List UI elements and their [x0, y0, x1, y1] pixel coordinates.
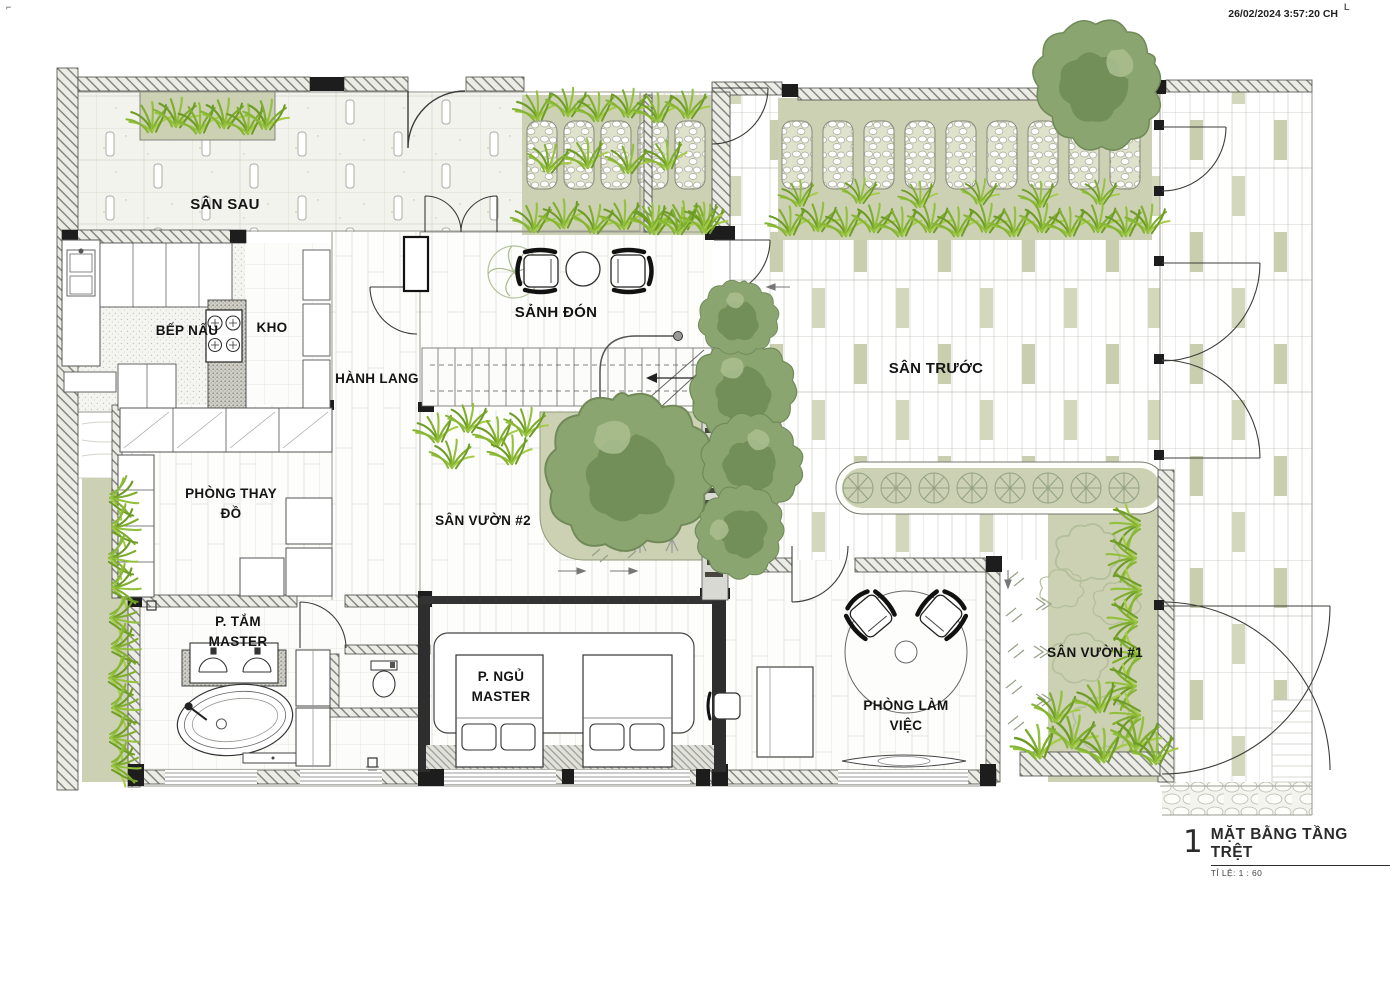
label-line: MASTER	[209, 632, 268, 652]
label-line: PHÒNG LÀM	[863, 696, 948, 716]
room-label-bep-nau: BẾP NẤU	[156, 321, 219, 341]
room-label-san-truoc: SÂN TRƯỚC	[889, 359, 984, 379]
room-label-hanh-lang: HÀNH LANG	[335, 369, 419, 389]
floor-plan-sheet: ⌐ L 26/02/2024 3:57:20 CH SÂN SAU BẾP NẤ…	[0, 0, 1390, 983]
toilet-icon	[371, 661, 397, 697]
master-bedroom-furniture	[426, 633, 714, 769]
room-label-san-vuon-1: SÂN VƯỜN #1	[1047, 643, 1143, 663]
crop-mark-top-right: L	[1344, 2, 1350, 12]
side-table-icon	[566, 252, 600, 286]
room-label-san-sau: SÂN SAU	[190, 195, 260, 215]
drawing-number: 1	[1183, 826, 1203, 858]
label-line: P. TẮM	[209, 612, 268, 632]
label-line: P. NGỦ	[472, 667, 531, 687]
storage-shelf	[303, 360, 330, 410]
room-label-sanh-don: SẢNH ĐÓN	[515, 303, 597, 323]
room-label-p-ngu-master: P. NGỦ MASTER	[472, 667, 531, 707]
storage-shelf	[303, 250, 330, 300]
label-line: PHÒNG THAY	[185, 484, 277, 504]
desk-icon	[757, 667, 813, 757]
drawing-scale: TỈ LỆ: 1 : 60	[1211, 868, 1390, 878]
title-block: 1 MẶT BẰNG TẦNG TRỆT TỈ LỆ: 1 : 60	[1183, 826, 1390, 878]
plot-timestamp: 26/02/2024 3:57:20 CH	[1228, 8, 1338, 20]
label-line: ĐỒ	[185, 504, 277, 524]
drawing-title: MẶT BẰNG TẦNG TRỆT	[1211, 826, 1390, 866]
room-label-phong-thay-do: PHÒNG THAY ĐỒ	[185, 484, 277, 524]
room-label-p-tam-master: P. TẮM MASTER	[209, 612, 268, 652]
hall-cabinet-icon	[404, 237, 428, 291]
room-label-san-vuon-2: SÂN VƯỜN #2	[435, 511, 531, 531]
room-label-phong-lam-viec: PHÒNG LÀM VIỆC	[863, 696, 948, 736]
crop-mark-top-left: ⌐	[6, 2, 11, 12]
room-label-kho: KHO	[257, 318, 288, 338]
label-line: VIỆC	[863, 716, 948, 736]
label-line: MASTER	[472, 687, 531, 707]
storage-shelf	[303, 304, 330, 356]
